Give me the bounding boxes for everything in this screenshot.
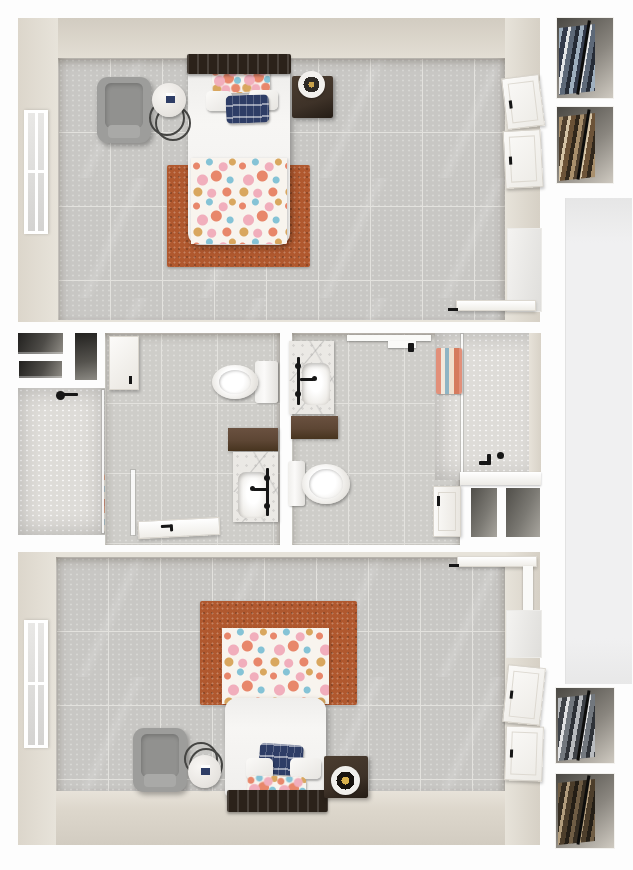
linen-niche <box>18 333 63 354</box>
hallway-strip <box>565 198 632 684</box>
vanity-cabinet <box>291 416 338 439</box>
navy-pillow <box>226 94 270 123</box>
wardrobe-closet <box>557 107 613 183</box>
hook-icon <box>408 343 414 352</box>
headboard <box>227 790 328 812</box>
walk-in-shower <box>18 388 105 535</box>
window <box>24 110 48 234</box>
floral-duvet <box>191 158 287 244</box>
toilet-bowl <box>212 365 258 399</box>
toilet <box>212 361 278 405</box>
shower-head-icon <box>56 391 65 400</box>
faucet-knob-icon <box>264 503 270 509</box>
door-frame <box>523 566 533 616</box>
armchair <box>133 728 187 792</box>
toilet-bowl <box>302 464 350 504</box>
faucet-knob-icon <box>295 391 301 397</box>
mirror-panel <box>506 610 542 658</box>
vanity-sink <box>289 341 334 414</box>
shower-side-wall <box>529 333 541 480</box>
headboard <box>187 54 291 74</box>
vanity-sink <box>233 452 278 522</box>
tub-shower <box>435 333 541 480</box>
open-door <box>433 486 461 537</box>
nightstand-tray <box>298 71 325 98</box>
closet-door <box>504 725 544 781</box>
floral-duvet <box>222 628 329 704</box>
wardrobe-closet <box>557 18 613 98</box>
tub-deck <box>460 472 541 485</box>
window-panes <box>28 113 44 231</box>
storage-niche <box>506 488 540 537</box>
tub-knob-icon <box>497 452 504 459</box>
towel-hook <box>388 341 416 348</box>
faucet-tip-icon <box>312 376 317 381</box>
toilet <box>288 461 352 507</box>
bedroom-bottom <box>18 552 540 845</box>
wardrobe-closet <box>556 774 614 848</box>
door-handle <box>170 524 173 531</box>
shower-glass-door <box>102 390 104 533</box>
closet-door <box>501 74 545 130</box>
closet-door <box>502 664 546 726</box>
toilet-tank <box>255 361 278 403</box>
armchair <box>97 77 151 143</box>
sink-basin <box>302 363 330 405</box>
side-table <box>152 83 186 117</box>
shower-door-frame <box>131 470 135 535</box>
linen-niche <box>19 361 62 378</box>
side-table <box>188 755 221 788</box>
door-handle <box>448 308 458 311</box>
window-panes <box>28 623 44 745</box>
faucet-knob-icon <box>264 475 270 481</box>
faucet-tip-icon <box>250 486 255 491</box>
storage-niche <box>471 488 497 537</box>
window <box>24 620 48 748</box>
bedroom-top <box>18 18 540 322</box>
vanity-counter <box>228 428 278 451</box>
faucet-knob-icon <box>295 363 301 369</box>
wall-cabinet <box>109 336 139 390</box>
tub-spout-icon <box>487 454 491 464</box>
hanging-towel <box>436 348 462 394</box>
linen-niche <box>75 333 97 380</box>
floorplan-render <box>0 0 633 870</box>
closet-door <box>503 129 544 189</box>
door-handle <box>449 564 459 567</box>
wardrobe-closet <box>556 688 614 763</box>
nightstand-decor <box>331 766 360 795</box>
open-door <box>456 300 536 311</box>
faucet-spout-icon <box>253 488 267 491</box>
